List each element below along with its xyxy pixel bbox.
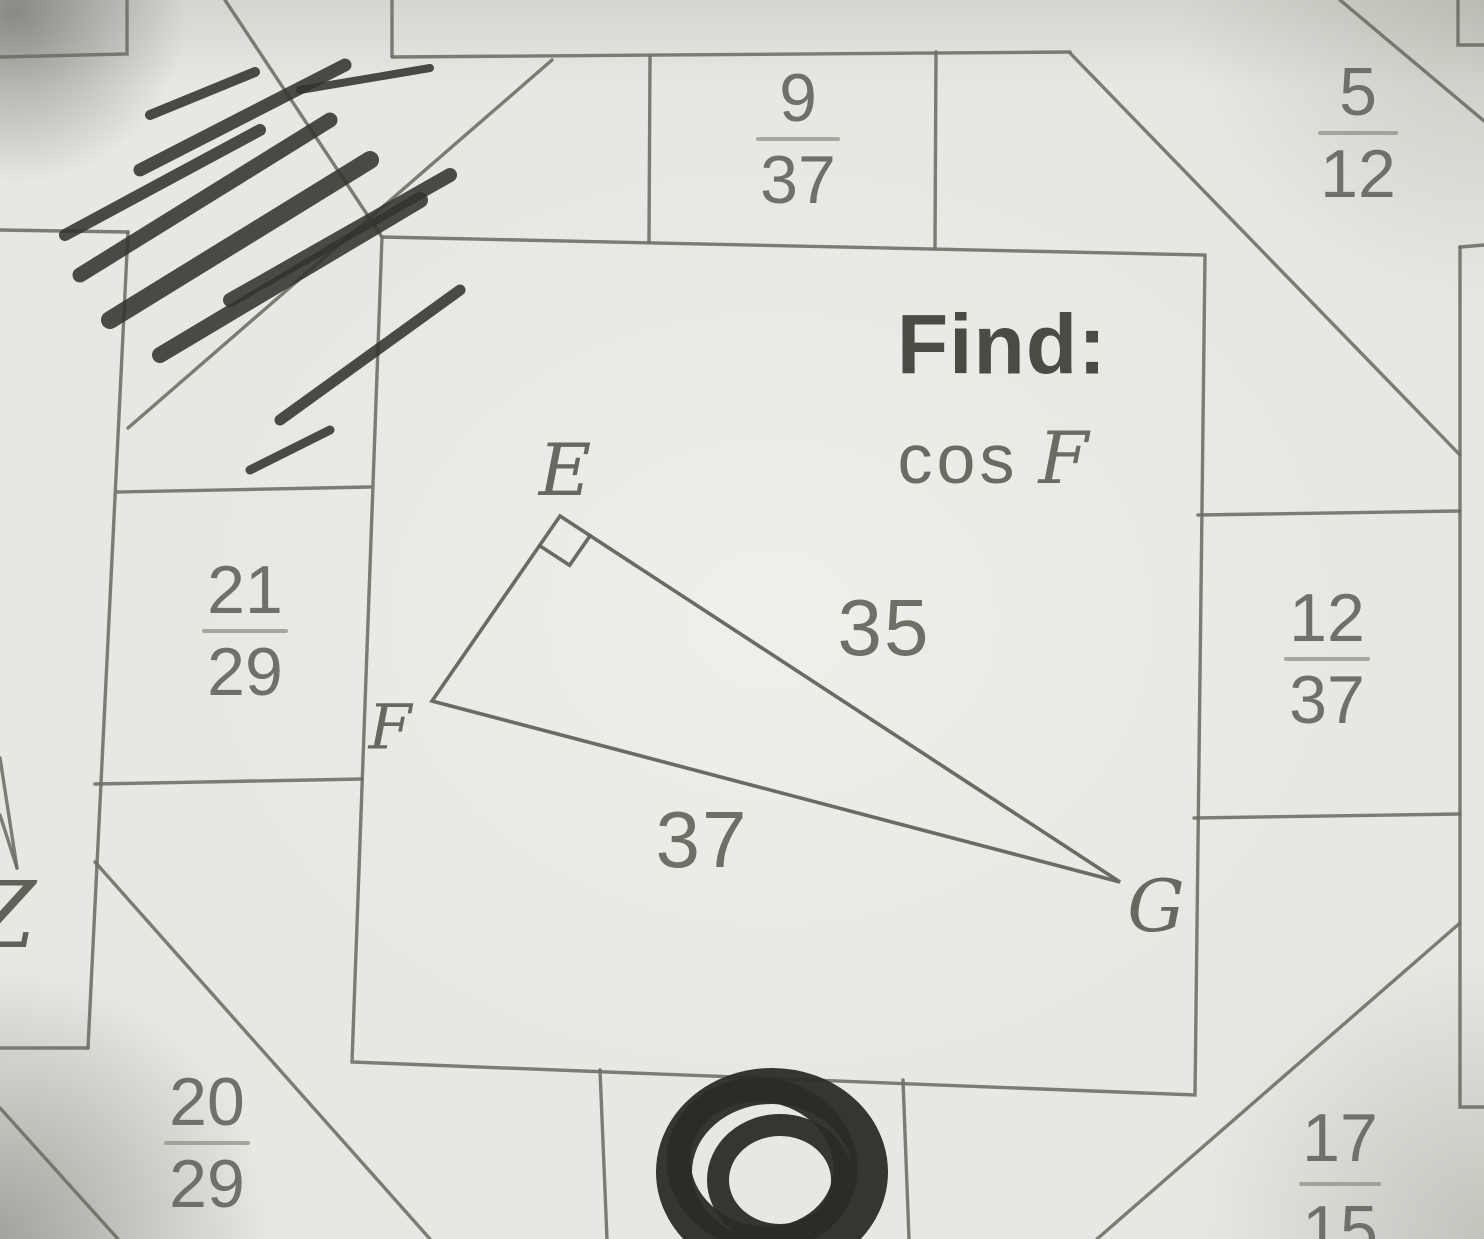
right-angle-mark [540,536,591,566]
fraction-denominator: 29 [169,1150,245,1218]
fraction-denominator: 29 [207,638,283,706]
fraction-mid-left: 21 29 [178,556,312,706]
fraction-bar [1284,657,1370,661]
fraction-mid-right: 12 37 [1262,584,1392,734]
fraction-top-center: 9 37 [733,64,863,214]
fraction-bar [1318,131,1398,135]
side-label-eg: 35 [838,582,931,674]
fraction-bar [1299,1182,1381,1186]
fraction-denominator: 12 [1320,140,1396,208]
right-triangle-efg [432,516,1120,882]
fraction-denominator: 15 [1302,1196,1378,1239]
angle-name-label: F [1038,416,1092,500]
fraction-denominator: 37 [1289,666,1365,734]
side-label-fg: 37 [656,794,749,886]
fraction-bar [202,629,288,633]
fraction-numerator: 5 [1339,58,1377,126]
trig-function-label: cos [898,419,1019,499]
fraction-denominator: 37 [760,146,836,214]
fraction-bottom-right: 17 15 [1275,1104,1405,1239]
expression-cos-f: cos F [898,416,1093,500]
fraction-numerator: 17 [1302,1104,1378,1172]
vertex-label-e: E [539,428,592,512]
pencil-scribble-top-left [65,65,460,470]
fraction-bar [756,137,840,141]
find-label: Find: [897,297,1107,394]
fraction-numerator: 20 [169,1068,245,1136]
fraction-bottom-left: 20 29 [140,1068,274,1218]
stray-letter-z: Z [0,862,36,969]
vertex-label-g: G [1127,864,1185,948]
pencil-scribble-ring [664,1074,870,1239]
fraction-numerator: 9 [779,64,817,132]
fraction-numerator: 21 [207,556,283,624]
fraction-top-right: 5 12 [1293,58,1423,208]
fraction-numerator: 12 [1289,584,1365,652]
worksheet-photo: Find: cos F E F G 35 37 9 37 5 12 21 29 … [0,0,1484,1239]
fraction-bar [164,1141,250,1145]
vertex-label-f: F [368,691,411,764]
